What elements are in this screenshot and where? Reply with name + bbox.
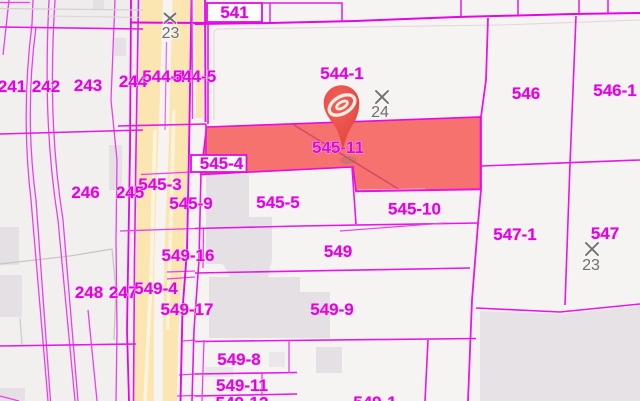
svg-text:541: 541 (220, 3, 248, 22)
svg-text:549-8: 549-8 (217, 350, 260, 369)
svg-text:549-12: 549-12 (216, 394, 269, 401)
svg-text:549-1: 549-1 (353, 393, 396, 401)
svg-text:546-1: 546-1 (593, 81, 636, 100)
svg-text:241: 241 (0, 77, 26, 96)
svg-text:243: 243 (74, 76, 102, 95)
svg-text:544-5: 544-5 (173, 67, 216, 86)
svg-text:549-9: 549-9 (310, 300, 353, 319)
svg-text:549-4: 549-4 (134, 279, 178, 298)
svg-text:547-1: 547-1 (493, 225, 536, 244)
svg-text:545-9: 545-9 (169, 194, 212, 213)
svg-text:24: 24 (371, 104, 389, 121)
svg-text:545-10: 545-10 (388, 200, 441, 219)
svg-text:549-16: 549-16 (162, 246, 215, 265)
svg-text:246: 246 (71, 183, 99, 202)
svg-text:547: 547 (591, 224, 619, 243)
svg-text:23: 23 (582, 257, 600, 274)
svg-text:545-3: 545-3 (138, 175, 181, 194)
svg-text:23: 23 (162, 25, 180, 42)
svg-text:546: 546 (512, 84, 540, 103)
svg-text:549: 549 (324, 242, 352, 261)
svg-text:549-11: 549-11 (216, 376, 268, 395)
svg-text:545-5: 545-5 (256, 193, 299, 212)
svg-text:248: 248 (75, 283, 103, 302)
svg-text:245: 245 (116, 183, 144, 202)
svg-text:242: 242 (32, 77, 60, 96)
svg-text:545-11: 545-11 (312, 138, 364, 157)
svg-text:545-4: 545-4 (200, 154, 244, 173)
svg-text:544-1: 544-1 (320, 64, 363, 83)
svg-text:247: 247 (109, 283, 137, 302)
svg-text:549-17: 549-17 (161, 300, 214, 319)
